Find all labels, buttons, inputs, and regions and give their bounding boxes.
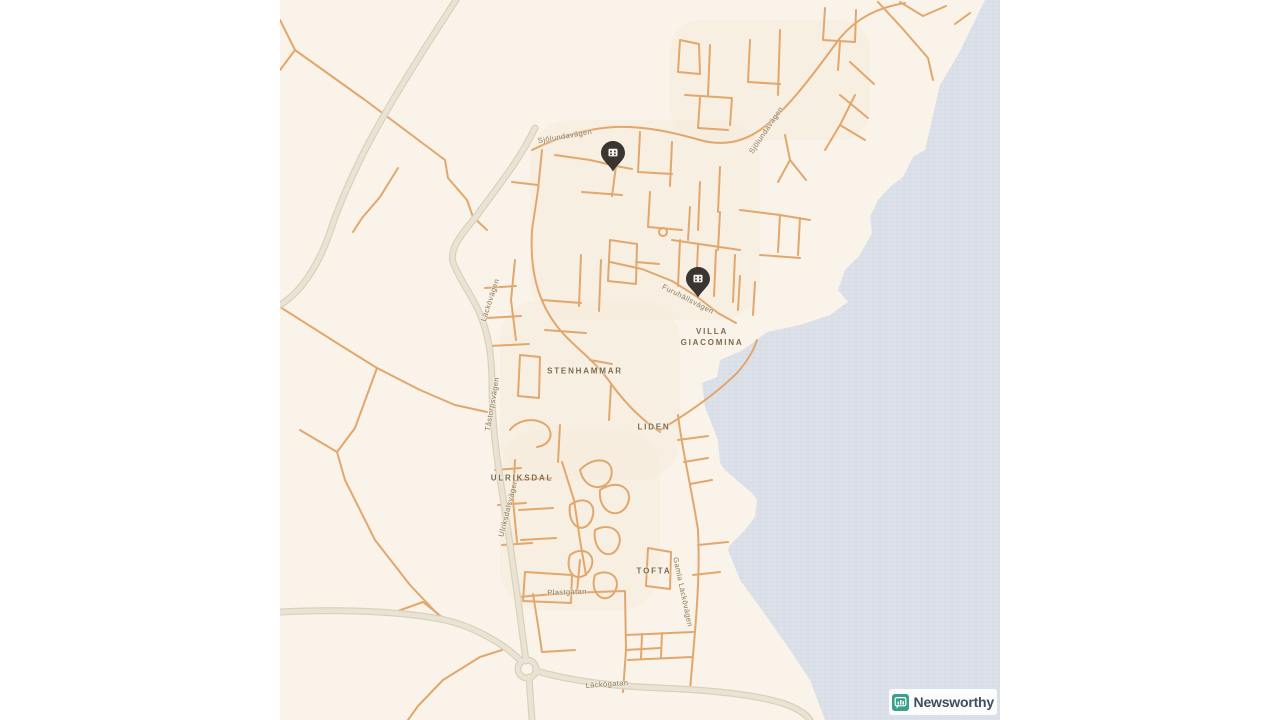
newsworthy-chart-badge-icon bbox=[892, 694, 909, 711]
newsworthy-logo[interactable]: Newsworthy bbox=[889, 689, 997, 715]
attribution-name: Newsworthy bbox=[914, 694, 994, 710]
map-canvas: SjölundavägenSjölundavägenFuruhällsvägen… bbox=[280, 0, 1000, 720]
map-graphics bbox=[280, 0, 1000, 720]
